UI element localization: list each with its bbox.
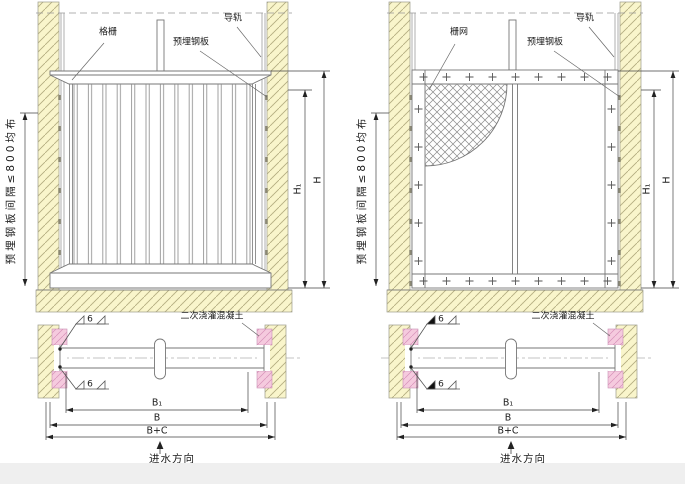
right-drawing-linework <box>349 0 685 484</box>
weld-size-label: 6 <box>87 381 93 390</box>
left-drawing-panel: 格栅 预埋钢板 导轨 预埋钢板间隔≤800均布 H₁ H 二次浇灌混凝土 6 6… <box>0 0 345 484</box>
plan-beam <box>411 339 615 379</box>
guide-rail-label: 导轨 <box>576 15 594 24</box>
center-mullion <box>513 84 518 274</box>
dim-b-label: B <box>505 413 512 423</box>
lifting-stem <box>157 20 164 72</box>
weld-size-label: 6 <box>438 381 444 390</box>
dim-h-label: H <box>313 176 323 183</box>
grille-label: 格栅 <box>99 29 117 38</box>
plan-lug <box>506 339 517 379</box>
dim-b1-label: B₁ <box>503 398 513 408</box>
bottom-beam <box>50 264 271 288</box>
flow-arrow-icon <box>508 441 515 449</box>
plan-lug <box>155 339 166 379</box>
secondary-concrete-label: 二次浇灌混凝土 <box>531 313 594 322</box>
secondary-concrete-pocket <box>608 329 623 345</box>
left-drawing-linework <box>0 0 345 484</box>
top-beam <box>50 71 271 84</box>
weld-size-label: 6 <box>438 316 444 325</box>
guide-rail-label: 导轨 <box>224 15 242 24</box>
concrete-leader <box>593 323 610 336</box>
bottom-strip <box>0 463 685 484</box>
right-drawing-panel: 栅网 预埋钢板 导轨 预埋钢板间隔≤800均布 H₁ H 二次浇灌混凝土 6 6… <box>349 0 685 484</box>
weld-size-label: 6 <box>87 316 93 325</box>
weld-symbols <box>411 316 460 389</box>
dim-b1-label: B₁ <box>152 398 162 408</box>
secondary-concrete-pocket <box>608 371 623 388</box>
dim-h1-label: H₁ <box>642 184 652 195</box>
flow-arrow-icon <box>157 441 164 449</box>
concrete-leader <box>242 323 259 336</box>
dim-h-label: H <box>662 176 672 183</box>
embedded-plate-label: 预埋钢板 <box>527 39 563 48</box>
mesh-screen-gate <box>412 20 618 288</box>
secondary-concrete-label: 二次浇灌混凝土 <box>180 313 243 322</box>
secondary-concrete-pocket <box>52 371 67 388</box>
dim-b-plus-c-label: B+C <box>146 426 167 436</box>
lifting-stem <box>509 20 516 70</box>
secondary-concrete-pocket <box>403 371 418 388</box>
grille-gate <box>50 20 271 288</box>
grille-bars <box>69 84 256 264</box>
secondary-concrete-pocket <box>257 329 272 345</box>
plan-beam <box>60 339 264 379</box>
dim-b-label: B <box>154 413 161 423</box>
dim-h1-label: H₁ <box>293 184 303 195</box>
secondary-concrete-pocket <box>52 329 67 345</box>
spacing-note-label: 预埋钢板间隔≤800均布 <box>357 116 368 265</box>
secondary-concrete-pocket <box>403 329 418 345</box>
weld-symbols <box>60 316 109 389</box>
secondary-concrete-pocket <box>257 371 272 388</box>
embedded-plate-label: 预埋钢板 <box>173 39 209 48</box>
spacing-note-label: 预埋钢板间隔≤800均布 <box>6 116 17 265</box>
mesh-label: 栅网 <box>450 29 468 38</box>
drawing-canvas: 格栅 预埋钢板 导轨 预埋钢板间隔≤800均布 H₁ H 二次浇灌混凝土 6 6… <box>0 0 685 484</box>
dim-b-plus-c-label: B+C <box>497 426 518 436</box>
